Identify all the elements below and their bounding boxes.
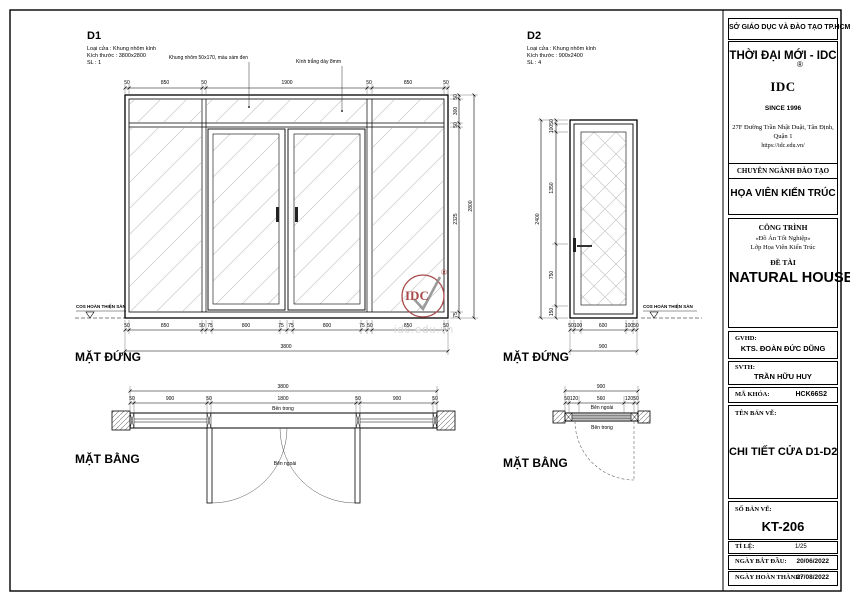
d2-meta-qty: SL : 4	[527, 60, 596, 67]
dim-label: 50	[129, 396, 135, 402]
d1-floor-level-label: COS HOÀN THIỆN SÀN	[76, 304, 126, 309]
d1-annotation-glass: Kính trắng dày 8mm	[295, 59, 341, 65]
dim-label: 850	[161, 323, 169, 329]
d1-meta-type: Loại cửa : Khung nhôm kính	[87, 46, 156, 53]
dim-label: 50	[366, 80, 372, 86]
d1-inside-label: Bên trong	[272, 406, 294, 412]
dim-label: 50	[367, 323, 373, 329]
dim-label: 900	[166, 396, 174, 402]
dim-label: 800	[242, 323, 250, 329]
dim-label: 600	[599, 323, 607, 329]
gvhd-label: GVHD:	[735, 335, 757, 342]
d2-elevation-drawing	[570, 120, 702, 318]
dim-label: 50	[633, 323, 639, 329]
dim-label: 1350	[549, 182, 555, 193]
scale-value: 1/25	[795, 544, 807, 550]
dim-label: 120	[570, 396, 578, 402]
project-header: CÔNG TRÌNH	[729, 223, 837, 232]
d2-code: D2	[527, 30, 541, 42]
dim-label: 50	[355, 396, 361, 402]
titleblock-project-cell: CÔNG TRÌNH «Đồ Án Tốt Nghiệp» Lớp Họa Vi…	[728, 218, 838, 328]
dim-label: 900	[393, 396, 401, 402]
titleblock-startdate-cell: NGÀY BẮT ĐẦU: 20/06/2022	[728, 555, 838, 570]
project-title: NATURAL HOUSE	[729, 270, 837, 286]
d2-meta-size: Kích thước : 900x2400	[527, 53, 596, 60]
titleblock-brand-cell: THỜI ĐẠI MỚI - IDC IDC ® SINCE 1996 27F …	[728, 41, 838, 215]
d1-elevation-label: MẶT ĐỨNG	[75, 350, 141, 364]
d1-plan-label: MẶT BẰNG	[75, 452, 140, 466]
finish-date: 27/08/2022	[796, 574, 829, 581]
dim-label: 75	[207, 323, 213, 329]
d2-meta-type: Loại cửa : Khung nhôm kính	[527, 46, 596, 53]
dim-label: 75	[453, 312, 459, 318]
address-line2: Quận 1	[729, 133, 837, 140]
scale-label: TỈ LỆ:	[735, 543, 754, 550]
titleblock-gvhd-cell: GVHD: KTS. ĐOÀN ĐỨC DŨNG	[728, 331, 838, 359]
dim-label: 50	[124, 323, 130, 329]
d1-elevation-drawing	[125, 95, 448, 318]
d1-outside-label: Bên ngoài	[274, 461, 297, 467]
topic-header: ĐỀ TÀI	[729, 258, 837, 267]
training-header: CHUYÊN NGÀNH ĐÀO TẠO	[729, 167, 837, 175]
code-value: HCK66S2	[795, 391, 827, 398]
stamp-registered-icon: ®	[441, 268, 447, 277]
drawing-sheet: D1 Loại cửa : Khung nhôm kính Kích thước…	[0, 0, 850, 601]
dim-label: 120	[625, 396, 633, 402]
divider	[729, 163, 837, 164]
d2-inside-label: Bên trong	[591, 425, 613, 431]
d2-floor-level-label: COS HOÀN THIỆN SÀN	[643, 304, 693, 309]
dim-label: 50	[633, 396, 639, 402]
dim-label: 75	[278, 323, 284, 329]
drawing-name-label: TÊN BẢN VẼ:	[735, 410, 776, 417]
d1-meta-size: Kích thước : 3800x2800	[87, 53, 156, 60]
dim-label: 50	[206, 396, 212, 402]
titleblock-scale-cell: TỈ LỆ: 1/25	[728, 541, 838, 554]
dim-label: 900	[597, 384, 605, 390]
svth-name: TRẦN HỮU HUY	[729, 372, 837, 381]
dim-label: 750	[549, 271, 555, 279]
dim-label: 50	[124, 80, 130, 86]
watermark: idc.edu.vn	[394, 324, 454, 336]
divider	[729, 178, 837, 179]
dim-label: 3800	[280, 344, 291, 350]
stamp-text: IDC	[405, 288, 429, 304]
titleblock-agency-cell: SỞ GIÁO DỤC VÀ ĐÀO TẠO TP.HCM	[728, 18, 838, 40]
dim-label: 900	[599, 344, 607, 350]
agency-name: SỞ GIÁO DỤC VÀ ĐÀO TẠO TP.HCM	[729, 24, 837, 31]
d1-meta-qty: SL : 1	[87, 60, 156, 67]
dim-label: 50	[199, 323, 205, 329]
drawing-number-label: SỐ BẢN VẼ:	[735, 506, 772, 513]
d2-elevation-label: MẶT ĐỨNG	[503, 350, 569, 364]
logo-text: IDC	[729, 79, 837, 95]
dim-label: 50	[453, 122, 459, 128]
dim-label: 50	[453, 94, 459, 100]
website-link[interactable]: https://idc.edu.vn/	[729, 143, 837, 149]
dim-label: 1800	[277, 396, 288, 402]
d1-meta: Loại cửa : Khung nhôm kính Kích thước : …	[87, 46, 156, 67]
titleblock-number-cell: SỐ BẢN VẼ: KT-206	[728, 501, 838, 540]
dim-label: 560	[597, 396, 605, 402]
dim-label: 50	[432, 396, 438, 402]
dim-label: 800	[323, 323, 331, 329]
brand-name: THỜI ĐẠI MỚI - IDC	[729, 50, 837, 62]
dim-label: 2800	[468, 200, 474, 211]
start-date-label: NGÀY BẮT ĐẦU:	[735, 558, 787, 565]
dim-label: 850	[404, 80, 412, 86]
address-line1: 27F Đường Trần Nhật Duật, Tân Định,	[729, 124, 837, 131]
d2-plan-label: MẶT BẰNG	[503, 456, 568, 470]
gvhd-name: KTS. ĐOÀN ĐỨC DŨNG	[729, 344, 837, 353]
dim-label: 2325	[453, 213, 459, 224]
d1-annotation-frame: Khung nhôm 50x170, màu xám đen	[158, 55, 248, 61]
titleblock-name-cell: TÊN BẢN VẼ: CHI TIẾT CỬA D1-D2	[728, 405, 838, 499]
titleblock-svth-cell: SVTH: TRẦN HỮU HUY	[728, 361, 838, 385]
project-line1: «Đồ Án Tốt Nghiệp»	[729, 235, 837, 242]
drawing-number: KT-206	[729, 519, 837, 534]
dim-label: 300	[453, 107, 459, 115]
dim-label: 50	[443, 80, 449, 86]
d1-plan-drawing	[112, 386, 455, 503]
major-name: HỌA VIÊN KIẾN TRÚC	[729, 188, 837, 199]
finish-date-label: NGÀY HOÀN THÀNH:	[735, 574, 803, 581]
dim-label: 1900	[281, 80, 292, 86]
start-date: 20/06/2022	[796, 558, 829, 565]
dim-label: 3800	[277, 384, 288, 390]
dim-label: 150	[549, 308, 555, 316]
dim-label: 2400	[535, 213, 541, 224]
dim-label: 75	[359, 323, 365, 329]
code-label: MÃ KHÓA:	[735, 391, 769, 398]
dim-label: 50	[201, 80, 207, 86]
since-label: SINCE 1996	[729, 105, 837, 112]
svth-label: SVTH:	[735, 364, 755, 371]
d2-meta: Loại cửa : Khung nhôm kính Kích thước : …	[527, 46, 596, 67]
dim-label: 850	[161, 80, 169, 86]
project-line2: Lớp Họa Viên Kiến Trúc	[729, 244, 837, 251]
dim-label: 100	[574, 323, 582, 329]
dim-label: 100	[549, 125, 555, 133]
dim-label: 100	[625, 323, 633, 329]
dim-label: 75	[288, 323, 294, 329]
titleblock-code-cell: MÃ KHÓA: HCK66S2	[728, 387, 838, 403]
registered-icon: ®	[797, 60, 803, 69]
titleblock-finishdate-cell: NGÀY HOÀN THÀNH: 27/08/2022	[728, 571, 838, 586]
d2-outside-label: Bên ngoài	[591, 405, 614, 411]
d1-code: D1	[87, 30, 101, 42]
drawing-name: CHI TIẾT CỬA D1-D2	[729, 446, 837, 458]
